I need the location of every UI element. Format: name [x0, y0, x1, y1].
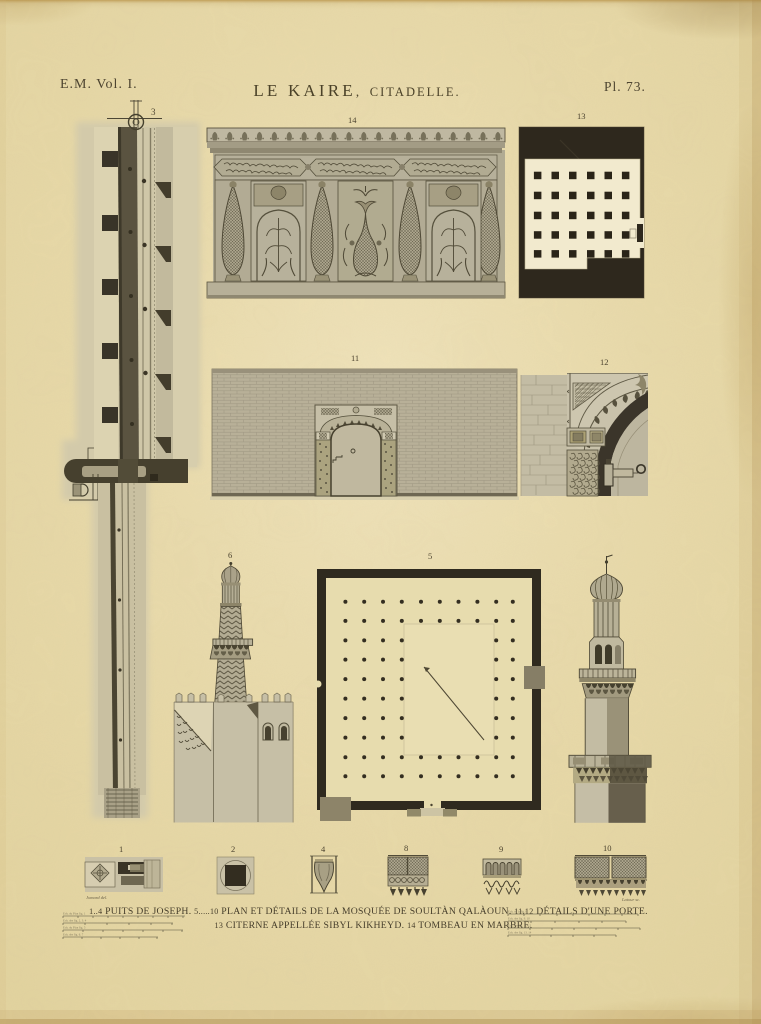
svg-text:1: 1	[119, 844, 123, 854]
svg-text:Ech. des fig. 11. 12: Ech. des fig. 11. 12	[508, 924, 532, 928]
svg-text:13: 13	[577, 111, 586, 121]
svg-text:4: 4	[321, 844, 326, 854]
svg-text:Ech. du Plan fig. 1: Ech. du Plan fig. 1	[63, 912, 86, 916]
svg-text:11: 11	[351, 353, 359, 363]
svg-text:2: 2	[231, 844, 235, 854]
svg-text:Ech. des fig. 13. 14: Ech. des fig. 13. 14	[508, 931, 532, 935]
svg-text:8: 8	[404, 843, 408, 853]
svg-text:Latour sc.: Latour sc.	[621, 897, 640, 902]
svg-text:Ech. des fig. 2. 3. 4: Ech. des fig. 2. 3. 4	[63, 919, 87, 923]
svg-text:9: 9	[499, 844, 503, 854]
svg-text:Ech. du Plan fig. 5: Ech. du Plan fig. 5	[63, 926, 86, 930]
svg-text:Ech. des fig. 6. 7: Ech. des fig. 6. 7	[63, 933, 84, 937]
svg-text:Ech. de la fig. 8: Ech. de la fig. 8	[508, 910, 527, 914]
svg-text:Jomard del.: Jomard del.	[86, 895, 107, 900]
svg-text:Ech. des fig. 9. 10: Ech. des fig. 9. 10	[508, 917, 530, 921]
svg-text:3: 3	[151, 107, 156, 117]
svg-text:5: 5	[428, 551, 432, 561]
svg-text:12: 12	[600, 357, 609, 367]
svg-text:10: 10	[603, 843, 612, 853]
svg-text:14: 14	[348, 115, 357, 125]
svg-text:6: 6	[228, 550, 232, 560]
